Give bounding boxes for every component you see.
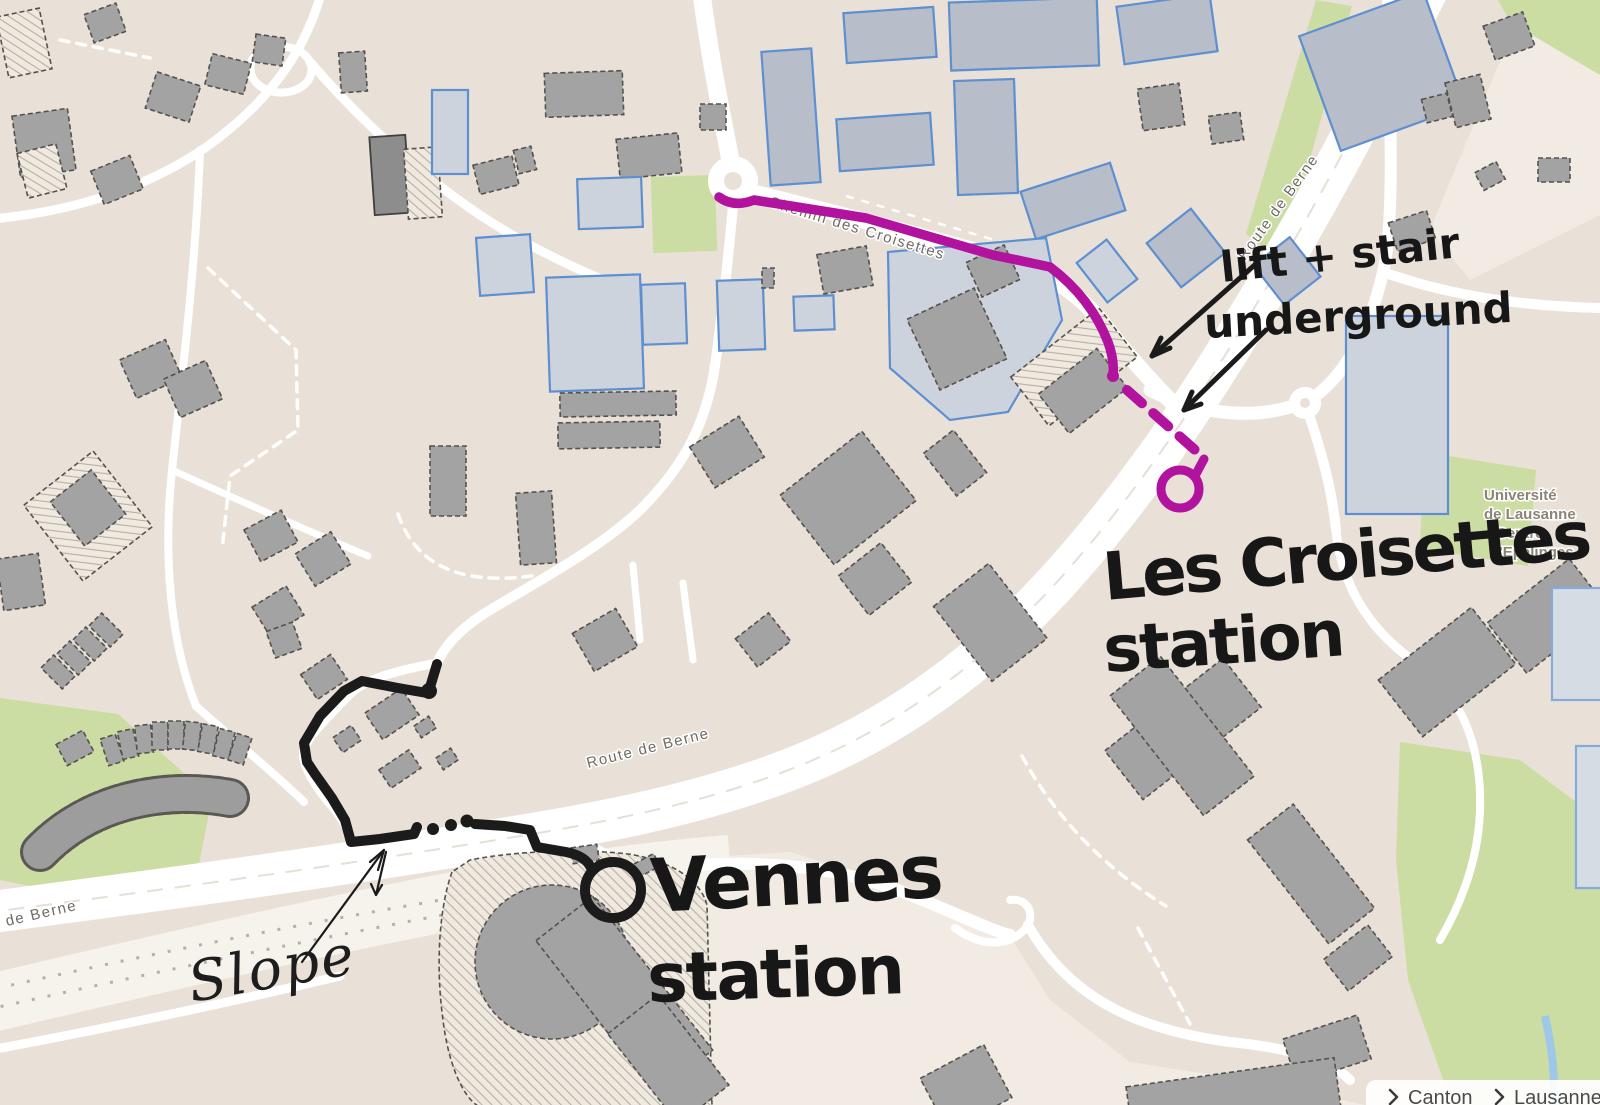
canton-link-label[interactable]: Canton (1408, 1087, 1473, 1105)
vennes-station-label-line2: station (646, 931, 904, 1019)
vennes-station-label-line1: Vennes (648, 829, 943, 930)
map-canvas: Chemin des Croisettes Route de Berne Rou… (0, 0, 1600, 1105)
attribution-bar: Canton Lausanne (1366, 1080, 1600, 1105)
lausanne-link-label[interactable]: Lausanne (1514, 1087, 1600, 1105)
map-viewport[interactable]: Chemin des Croisettes Route de Berne Rou… (0, 0, 1600, 1105)
